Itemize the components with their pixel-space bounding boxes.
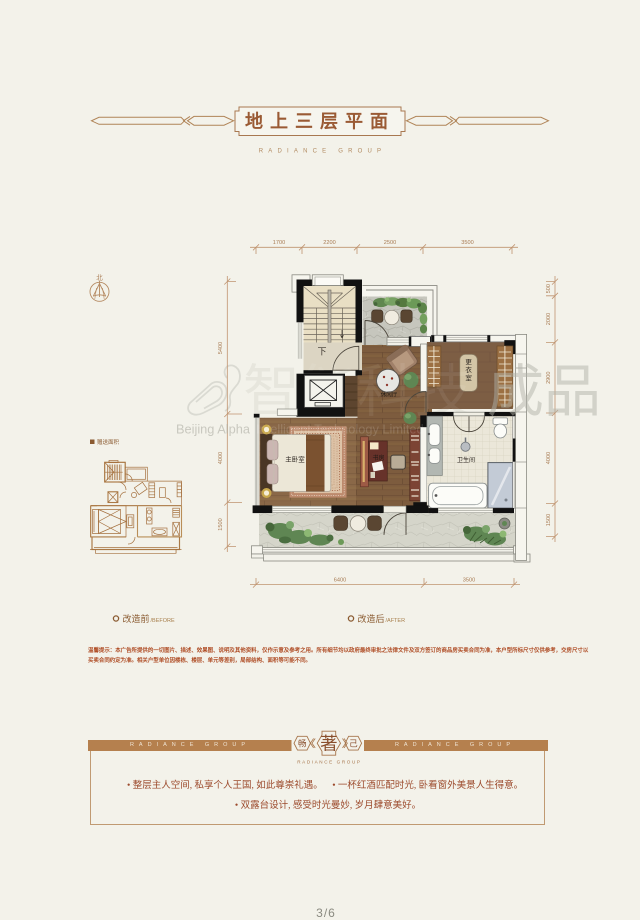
- svg-text:3500: 3500: [461, 240, 473, 246]
- svg-text:5400: 5400: [218, 342, 224, 354]
- svg-text:赠送面积: 赠送面积: [97, 438, 120, 446]
- svg-text:卫生间: 卫生间: [457, 456, 475, 464]
- svg-text:己: 己: [349, 738, 358, 748]
- svg-text:1500: 1500: [546, 514, 552, 526]
- svg-text:4000: 4000: [218, 452, 224, 464]
- svg-text:1500: 1500: [218, 518, 224, 530]
- svg-text:下: 下: [318, 347, 327, 357]
- svg-text:改造后: 改造后: [358, 613, 385, 624]
- svg-text:改造前: 改造前: [123, 613, 150, 624]
- svg-text:3500: 3500: [463, 578, 475, 584]
- svg-text:1700: 1700: [273, 240, 285, 246]
- svg-text:畅: 畅: [298, 738, 307, 748]
- svg-text:/AFTER: /AFTER: [386, 618, 406, 624]
- svg-text:2500: 2500: [384, 240, 396, 246]
- svg-text:地上三层平面: 地上三层平面: [245, 111, 395, 132]
- svg-text:成品: 成品: [487, 361, 601, 424]
- svg-text:6400: 6400: [334, 578, 346, 584]
- svg-text:RADIANCE GROUP: RADIANCE GROUP: [297, 760, 361, 765]
- svg-text:4000: 4000: [546, 452, 552, 464]
- svg-text:主卧室: 主卧室: [285, 455, 305, 464]
- svg-text:书房: 书房: [372, 454, 384, 462]
- svg-text:Beijing Alpha: Beijing Alpha: [176, 422, 251, 437]
- svg-text:500: 500: [546, 284, 552, 293]
- svg-text:RADIANCE GROUP: RADIANCE GROUP: [259, 149, 386, 155]
- svg-text:北: 北: [96, 274, 103, 282]
- svg-text:2200: 2200: [323, 240, 335, 246]
- svg-text:著: 著: [320, 734, 338, 754]
- svg-text:/BEFORE: /BEFORE: [151, 618, 175, 624]
- svg-text:2000: 2000: [546, 313, 552, 325]
